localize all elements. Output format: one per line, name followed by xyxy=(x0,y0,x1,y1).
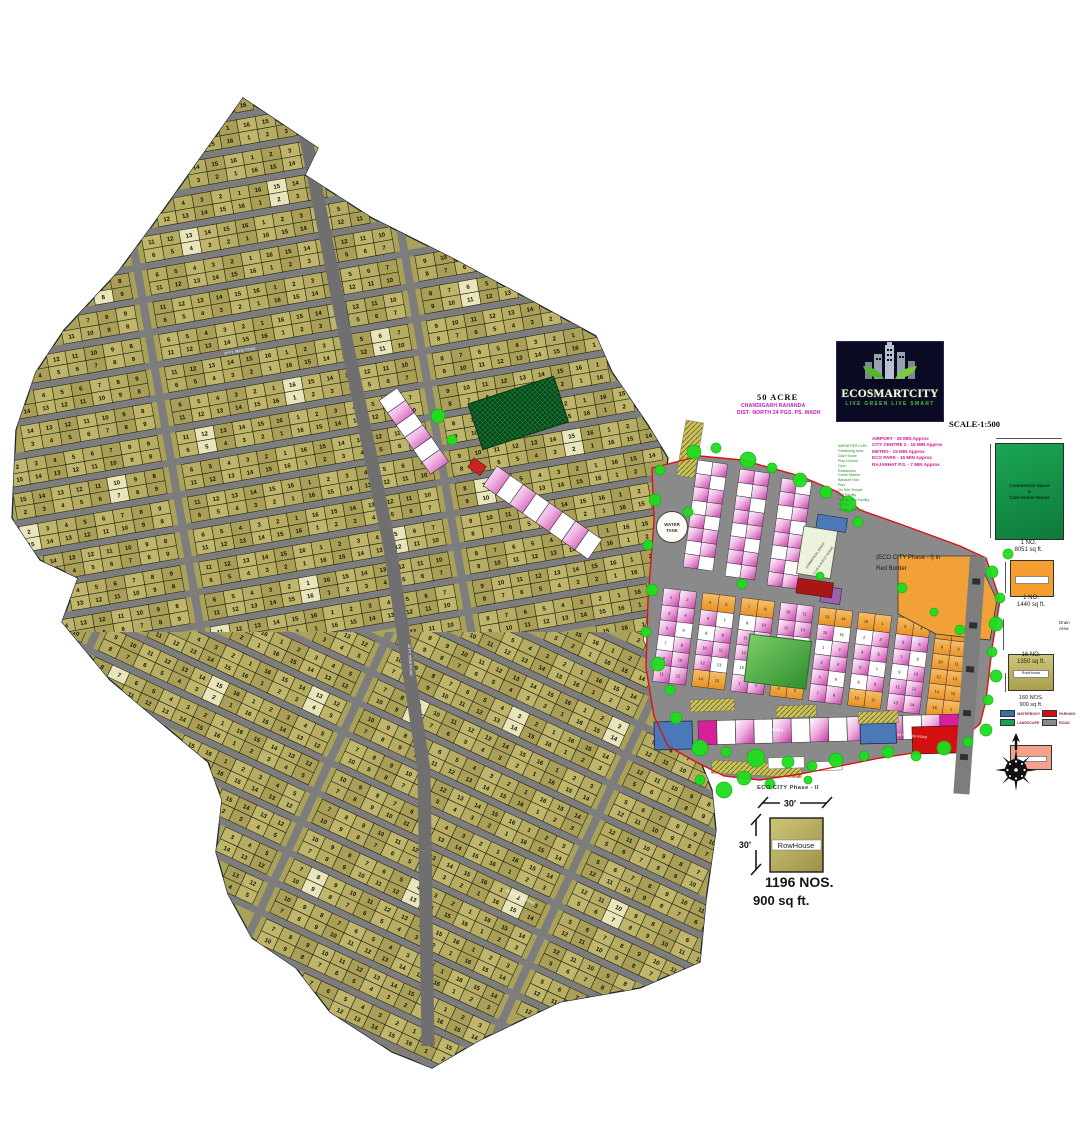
phase2-label: ECO CITY Phase - II xyxy=(757,785,819,791)
rowhouse16-size: 1350 sq ft. xyxy=(993,659,1069,666)
rowhouse-size: 900 sq ft. xyxy=(753,893,809,908)
color-legend: WATERBODY PARKING LANDSCAPE ROAD xyxy=(1000,710,1080,726)
rowhouse-label: RowHouse xyxy=(778,841,815,850)
svg-text:WATER: WATER xyxy=(664,522,680,527)
water-tank: WATERTANK xyxy=(657,512,688,543)
rowhouse16-strip: RowHouse xyxy=(1013,670,1049,678)
compass-rose-icon xyxy=(988,732,1046,796)
legend-label: PARKING xyxy=(1059,712,1075,716)
shop-size: 1440 sq ft. xyxy=(993,602,1069,609)
shop-count: 1 NO. xyxy=(993,595,1069,602)
phase1-note-line2: Red Border xyxy=(876,564,940,575)
logo-name: ECOSMARTCITY xyxy=(837,388,943,400)
distance-item: ECO PARK - 15 MIN Approx xyxy=(872,455,942,461)
distance-item: RAJARHAT P.S. - 7 MIN Approx xyxy=(872,462,942,468)
location-line2: DIST- NORTH 24 PGS. PS. MADH xyxy=(737,410,821,416)
community-count: 1 NO. xyxy=(995,540,1062,547)
legend-label: WATERBODY xyxy=(1017,712,1040,716)
rowhouse-left-dim: 30' xyxy=(739,840,751,850)
rowhouse-top-dim: 30' xyxy=(784,799,796,809)
logo-building-leaves-icon xyxy=(837,342,943,382)
rowhouse160-count: 160 NOS. xyxy=(993,695,1069,702)
color-legend-item: WATERBODY xyxy=(1000,710,1042,717)
rowhouse16-count: 16 NO. xyxy=(993,652,1069,659)
phase1-note-line1: (ECO CITY Phase - I) in xyxy=(876,553,940,564)
color-legend-item: PARKING xyxy=(1042,710,1080,717)
amenity-item: 24 Hrs. Security xyxy=(838,508,869,513)
legend-shop-box xyxy=(1010,560,1054,597)
ecosmartcity-logo: ECOSMARTCITY LIVE GREEN LIVE SMART xyxy=(836,341,944,422)
rowhouse-count: 1196 NOS. xyxy=(765,874,834,890)
dim-line xyxy=(1003,619,1004,650)
area-title: 50 ACRE xyxy=(757,392,798,402)
dim-line xyxy=(996,438,1062,439)
legend-label: ROAD xyxy=(1059,721,1070,725)
legend-swatch xyxy=(1000,719,1015,726)
rowhouse-unit-diagram: 30' RowHouse 30' xyxy=(736,792,836,880)
dim-line xyxy=(1005,562,1006,593)
color-legend-item: ROAD xyxy=(1042,719,1080,726)
legend-swatch xyxy=(1042,710,1057,717)
location-line1: CHANDIGARH RAHANDA xyxy=(741,403,805,409)
color-legend-item: LANDSCAPE xyxy=(1000,719,1042,726)
distance-list: AIRPORT - 26 MIN ApproxCITY CENTRE 2 - 1… xyxy=(872,436,942,468)
dim-line xyxy=(1005,673,1006,692)
community-line3: Club+Guest House xyxy=(1009,495,1049,501)
legend-swatch xyxy=(1000,710,1015,717)
phase1-plots: 1234567891011124567891011121314157891011… xyxy=(646,420,1000,780)
scale-label: SCALE-1:500 xyxy=(949,419,1000,429)
drain-line2: Area xyxy=(1059,626,1070,632)
svg-text:TANK: TANK xyxy=(666,528,679,533)
legend-label: LANDSCAPE xyxy=(1017,721,1039,725)
distance-item: CITY CENTRE 2 - 15 MIN Approx xyxy=(872,442,942,448)
logo-tagline: LIVE GREEN LIVE SMART xyxy=(837,401,943,407)
community-size: 8051 sq ft. xyxy=(995,547,1062,554)
dim-line xyxy=(990,444,991,538)
community-label: Commercial Space & Club+Guest House xyxy=(1009,483,1049,501)
shop-strip xyxy=(1015,576,1049,584)
community-line1: Commercial Space xyxy=(1009,483,1049,489)
drain-line1: Drain xyxy=(1059,620,1070,626)
drain-area-label: Drain Area xyxy=(1059,620,1070,631)
rowhouse160-size: 900 sq ft. xyxy=(993,702,1069,709)
amenities-list: AMENITIES CUM :Gardening AreaClub HouseP… xyxy=(838,444,869,513)
site-plan-page: 1611615151612314151612343211615141343211… xyxy=(0,0,1080,1142)
legend-swatch xyxy=(1042,719,1057,726)
phase1-note: (ECO CITY Phase - I) in Red Border xyxy=(876,553,940,574)
legend-community-box: Commercial Space & Club+Guest House xyxy=(995,443,1064,540)
